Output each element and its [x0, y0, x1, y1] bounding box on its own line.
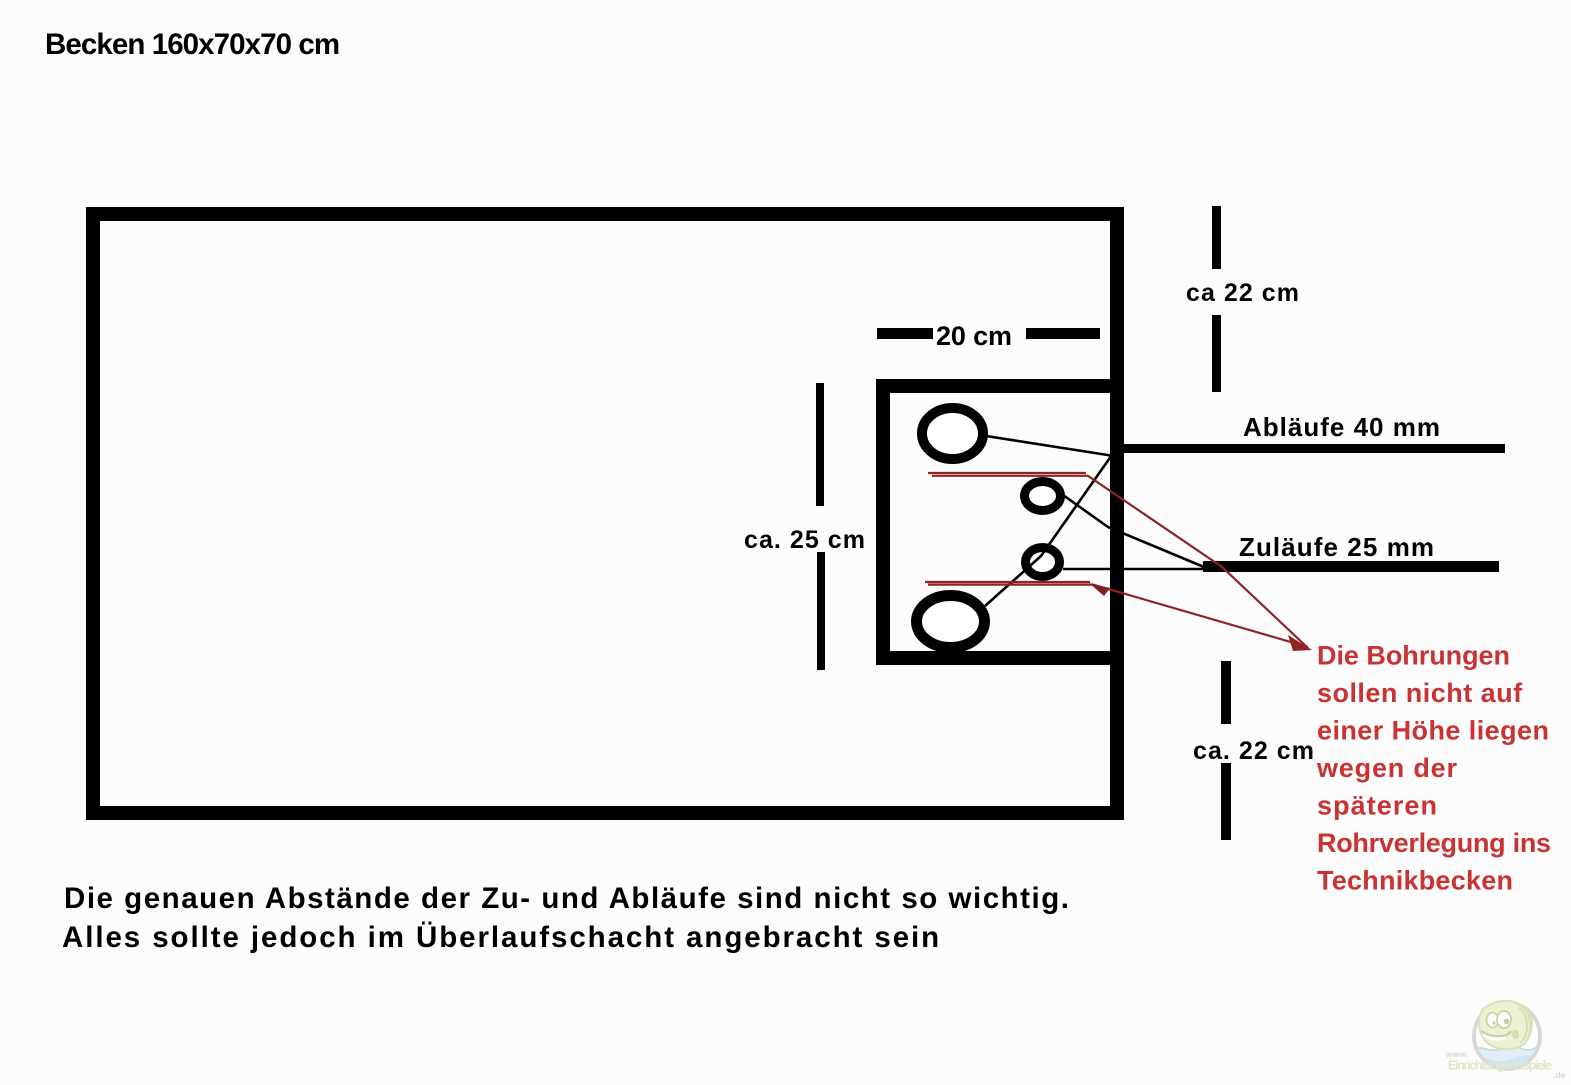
svg-text:einer Höhe liegen: einer Höhe liegen: [1317, 716, 1549, 746]
svg-text:Alles sollte jedoch im Überlau: Alles sollte jedoch im Überlaufschacht a…: [62, 921, 941, 954]
svg-text:Zuläufe 25 mm: Zuläufe 25 mm: [1239, 532, 1435, 562]
svg-text:20 cm: 20 cm: [936, 321, 1012, 351]
svg-text:ca. 25 cm: ca. 25 cm: [744, 526, 866, 554]
svg-text:Becken 160x70x70 cm: Becken 160x70x70 cm: [45, 28, 339, 61]
svg-text:Technikbecken: Technikbecken: [1317, 866, 1513, 896]
svg-text:Die genauen Abstände der Zu- u: Die genauen Abstände der Zu- und Abläufe…: [64, 882, 1071, 915]
svg-text:wegen der: wegen der: [1316, 753, 1458, 783]
svg-text:Abläufe 40 mm: Abläufe 40 mm: [1243, 412, 1441, 442]
svg-text:Die Bohrungen: Die Bohrungen: [1317, 641, 1510, 671]
svg-text:ca 22 cm: ca 22 cm: [1186, 279, 1300, 307]
svg-text:ca. 22 cm: ca. 22 cm: [1193, 737, 1315, 765]
svg-text:Einrichtungsbeispiele: Einrichtungsbeispiele: [1448, 1059, 1552, 1073]
svg-text:Rohrverlegung ins: Rohrverlegung ins: [1317, 828, 1551, 858]
svg-text:späteren: späteren: [1317, 791, 1438, 821]
svg-text:.de: .de: [1553, 1070, 1566, 1080]
svg-text:sollen nicht auf: sollen nicht auf: [1317, 678, 1523, 708]
